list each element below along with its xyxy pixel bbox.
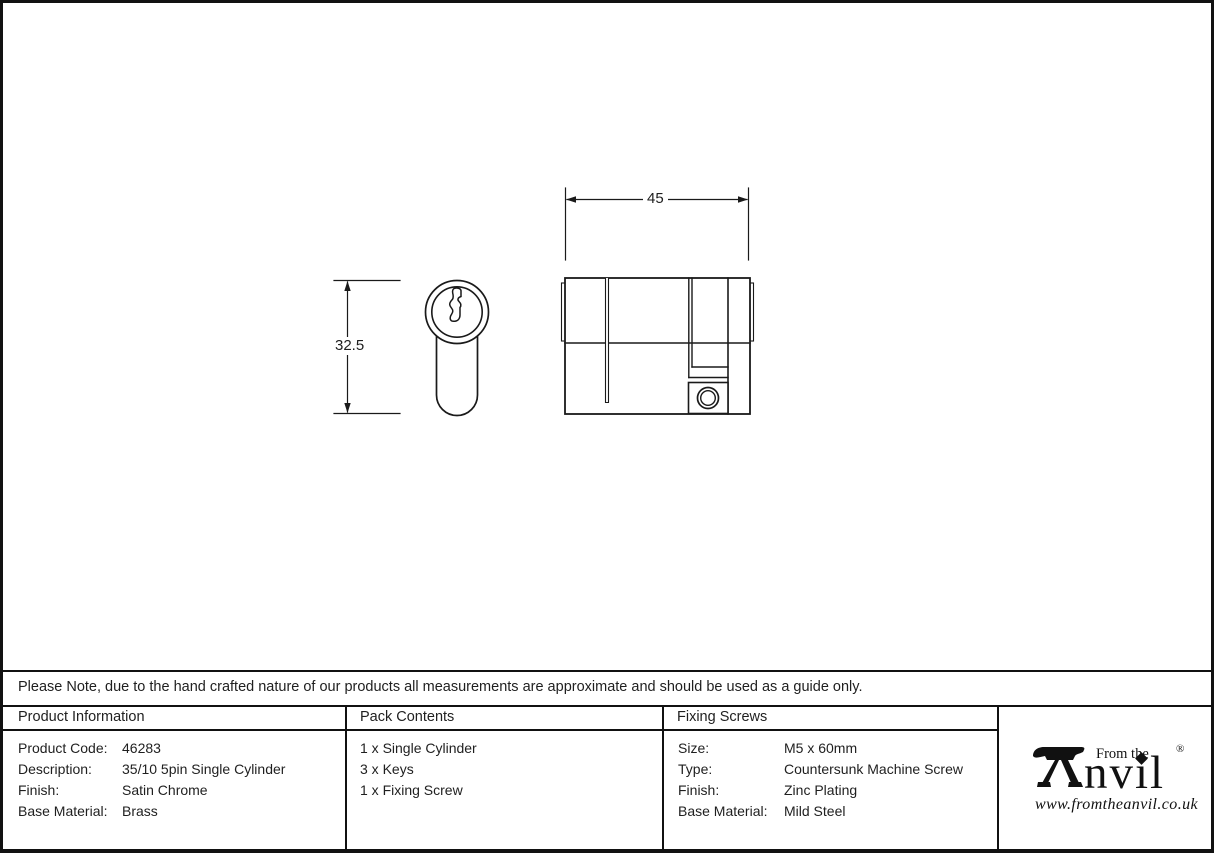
anvil-icon (1031, 744, 1087, 791)
screw-type-label: Type: (678, 759, 712, 780)
product-code-label: Product Code: (18, 738, 108, 759)
cylinder-side-view (562, 278, 754, 414)
pack-item: 1 x Fixing Screw (360, 780, 463, 801)
brand-name: nvıl (1084, 750, 1165, 797)
screw-finish-value: Zinc Plating (784, 780, 857, 801)
spec-sheet: 45 32.5 Please Note, due to the hand cra… (0, 0, 1214, 853)
base-material-label: Base Material: (18, 801, 107, 822)
measurement-note: Please Note, due to the hand crafted nat… (18, 670, 862, 705)
product-code-value: 46283 (122, 738, 161, 759)
header-bottom-border (3, 729, 997, 731)
header-pack-contents: Pack Contents (360, 706, 454, 729)
header-fixing-screws: Fixing Screws (677, 706, 767, 729)
screw-type-value: Countersunk Machine Screw (784, 759, 963, 780)
website-url: www.fromtheanvil.co.uk (1035, 796, 1198, 814)
table-top-border (3, 705, 1211, 707)
column-divider-3 (997, 705, 999, 849)
screw-base-material-label: Base Material: (678, 801, 767, 822)
description-value: 35/10 5pin Single Cylinder (122, 759, 285, 780)
pack-item: 1 x Single Cylinder (360, 738, 477, 759)
screw-size-label: Size: (678, 738, 709, 759)
finish-label: Finish: (18, 780, 59, 801)
registered-mark: ® (1176, 744, 1184, 755)
base-material-value: Brass (122, 801, 158, 822)
finish-value: Satin Chrome (122, 780, 208, 801)
header-product-information: Product Information (18, 706, 145, 729)
pack-item: 3 x Keys (360, 759, 414, 780)
description-label: Description: (18, 759, 92, 780)
screw-base-material-value: Mild Steel (784, 801, 845, 822)
height-dimension-label: 32.5 (331, 337, 368, 355)
technical-drawing (0, 0, 1214, 670)
column-divider-2 (662, 705, 664, 849)
cylinder-front-view (426, 281, 489, 416)
width-dimension-label: 45 (643, 190, 668, 208)
screw-finish-label: Finish: (678, 780, 719, 801)
column-divider-1 (345, 705, 347, 849)
screw-size-value: M5 x 60mm (784, 738, 857, 759)
